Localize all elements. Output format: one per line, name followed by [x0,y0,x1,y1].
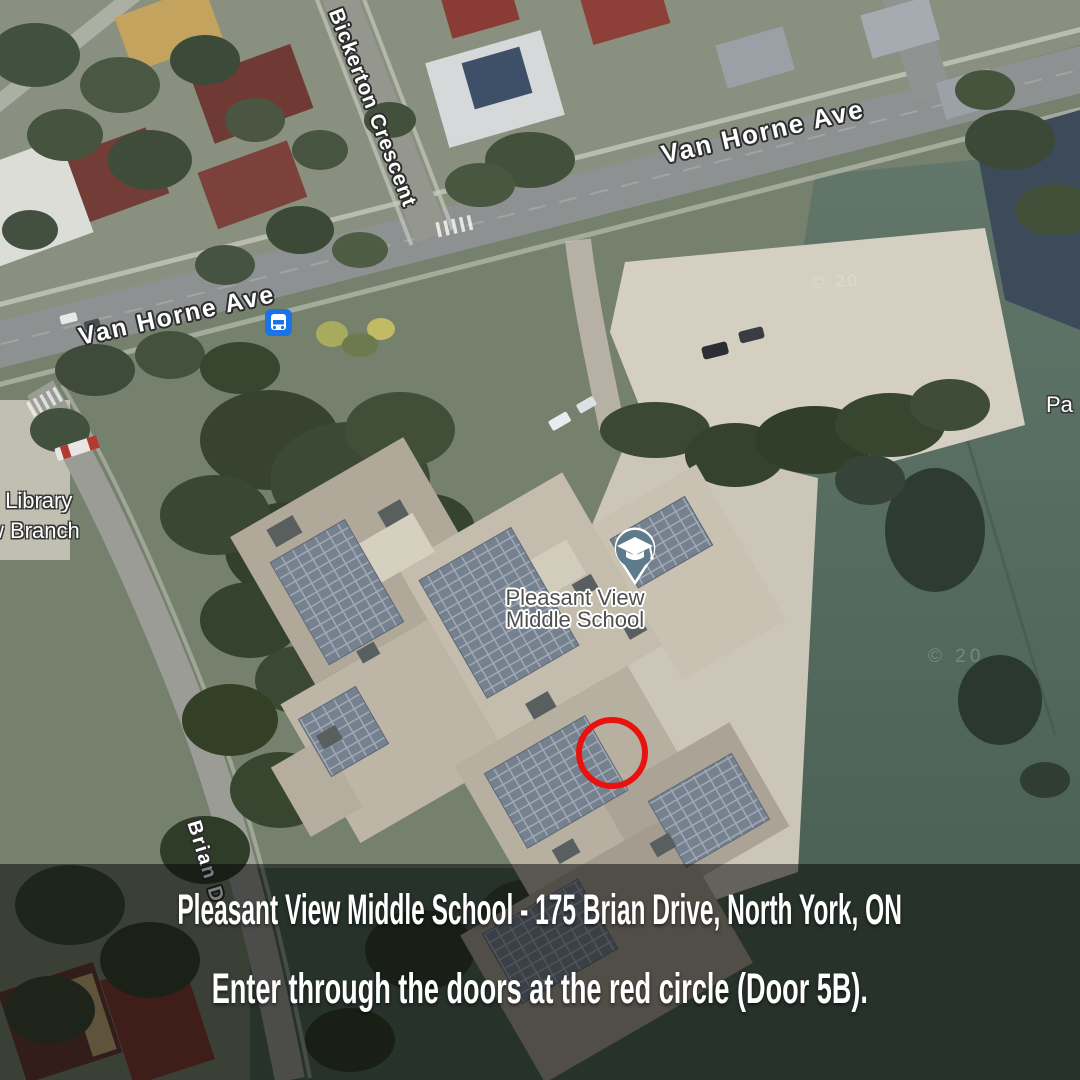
map-flyer: Bickerton Crescent Van Horne Ave Van Hor… [0,0,1080,1080]
school-label-line2: Middle School [505,609,644,631]
poi-label-right-edge: Pa [1046,392,1073,418]
library-label-line1: c Library [0,486,80,516]
banner-instruction-line: Enter through the doors at the red circl… [212,968,868,1011]
banner-address-line: Pleasant View Middle School - 175 Brian … [178,889,903,932]
library-label-line2: w Branch [0,516,80,546]
caption-banner: Pleasant View Middle School - 175 Brian … [0,864,1080,1080]
school-label-line1: Pleasant View [505,587,644,609]
bus-stop-icon[interactable] [265,309,292,336]
poi-label-library: c Library w Branch [0,486,80,546]
poi-label-school: Pleasant View Middle School [505,587,644,631]
